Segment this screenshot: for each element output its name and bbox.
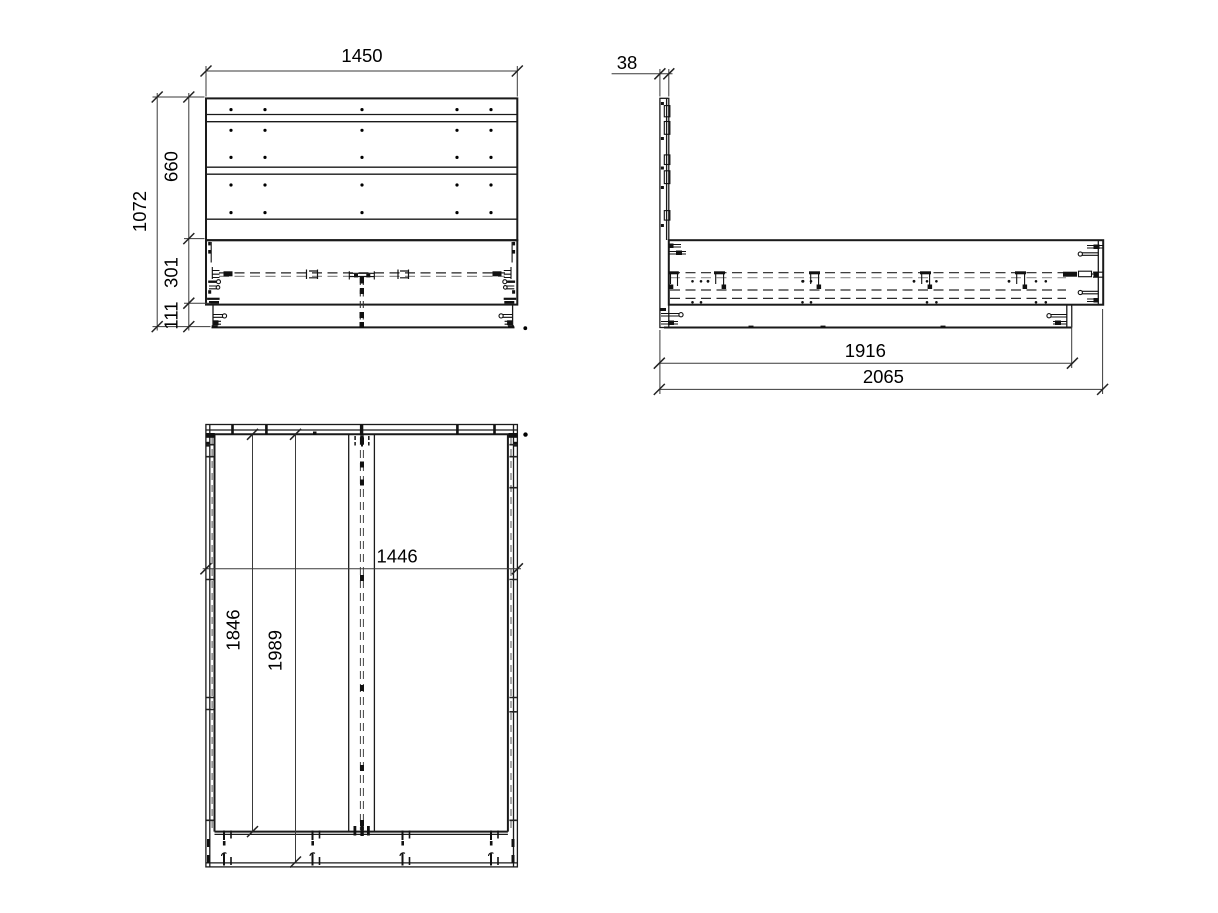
- svg-text:1846: 1846: [223, 609, 244, 650]
- svg-text:301: 301: [161, 257, 182, 288]
- svg-text:38: 38: [617, 52, 638, 73]
- svg-text:1989: 1989: [265, 630, 286, 671]
- svg-text:1446: 1446: [377, 546, 418, 567]
- svg-text:660: 660: [161, 151, 182, 182]
- svg-text:111: 111: [161, 301, 182, 329]
- svg-text:2065: 2065: [863, 366, 904, 387]
- svg-text:1916: 1916: [845, 340, 886, 361]
- svg-text:1450: 1450: [341, 45, 382, 66]
- svg-text:1072: 1072: [129, 191, 150, 232]
